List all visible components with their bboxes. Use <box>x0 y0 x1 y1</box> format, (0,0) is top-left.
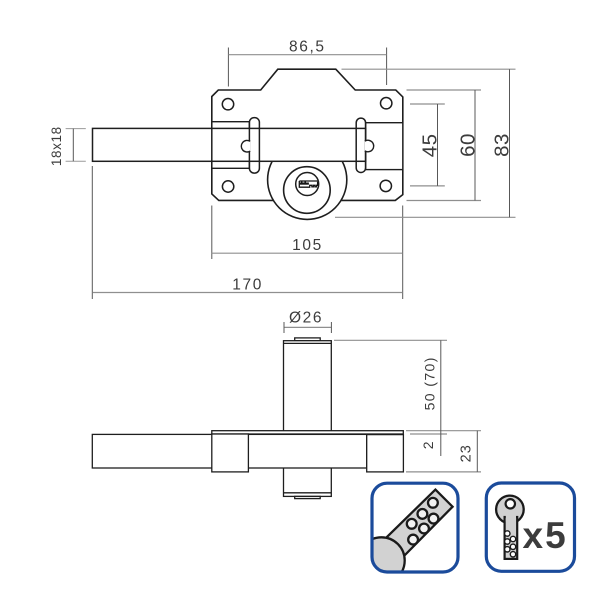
svg-text:45: 45 <box>418 133 441 157</box>
svg-text:x5: x5 <box>523 515 568 556</box>
svg-text:105: 105 <box>292 237 323 254</box>
svg-text:18x18: 18x18 <box>49 126 64 166</box>
svg-text:60: 60 <box>456 133 479 157</box>
svg-text:50 (70): 50 (70) <box>422 356 438 410</box>
svg-text:2: 2 <box>420 440 436 449</box>
svg-text:86,5: 86,5 <box>289 38 326 55</box>
svg-text:Ø26: Ø26 <box>289 310 323 327</box>
svg-text:83: 83 <box>490 133 513 157</box>
svg-text:23: 23 <box>459 444 475 462</box>
svg-text:170: 170 <box>232 276 263 293</box>
